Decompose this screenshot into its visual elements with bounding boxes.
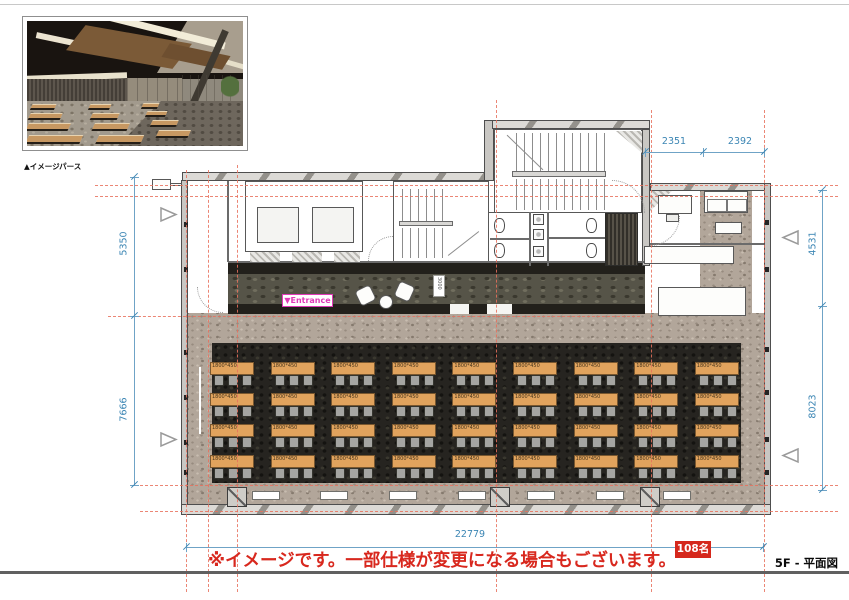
desk: 1800*450 bbox=[452, 393, 496, 406]
chair bbox=[470, 375, 480, 386]
chair bbox=[545, 375, 555, 386]
desk: 1800*450 bbox=[574, 424, 618, 437]
desk-size-label: 1800*450 bbox=[636, 363, 661, 369]
chair bbox=[699, 406, 709, 417]
chair bbox=[638, 437, 648, 448]
chair bbox=[335, 406, 345, 417]
dim-top-1: 2351 bbox=[649, 136, 699, 147]
desk-size-label: 1800*450 bbox=[212, 363, 237, 369]
wall-marker bbox=[765, 220, 769, 225]
section-marker-icon bbox=[781, 229, 800, 246]
desk: 1800*450 bbox=[695, 393, 739, 406]
dim-right-2: 8023 bbox=[808, 387, 819, 427]
desk: 1800*450 bbox=[513, 424, 557, 437]
floor-plan-sheet: ▲イメージパース bbox=[0, 0, 849, 600]
section-marker-icon bbox=[159, 431, 178, 448]
chair bbox=[484, 468, 494, 479]
window-bench bbox=[527, 491, 555, 500]
window-bench bbox=[389, 491, 417, 500]
chair bbox=[424, 406, 434, 417]
desk: 1800*450 bbox=[634, 362, 678, 375]
section-marker-icon bbox=[159, 206, 178, 223]
disclaimer-text: ※イメージです。一部仕様が変更になる場合もございます。 bbox=[208, 547, 678, 572]
window-bench bbox=[320, 491, 348, 500]
lounge-dimension-tag: 3000 bbox=[433, 275, 445, 297]
desk: 1800*450 bbox=[331, 362, 375, 375]
chair bbox=[652, 468, 662, 479]
desk-size-label: 1800*450 bbox=[515, 456, 540, 462]
chair bbox=[396, 437, 406, 448]
door-arc bbox=[368, 236, 393, 261]
chair bbox=[727, 437, 737, 448]
chair bbox=[303, 406, 313, 417]
desk-size-label: 1800*450 bbox=[333, 425, 358, 431]
chair bbox=[242, 375, 252, 386]
desk: 1800*450 bbox=[634, 455, 678, 468]
desk-size-label: 1800*450 bbox=[697, 456, 722, 462]
chair bbox=[638, 375, 648, 386]
chair bbox=[517, 468, 527, 479]
desk: 1800*450 bbox=[331, 424, 375, 437]
chair bbox=[727, 468, 737, 479]
desk: 1800*450 bbox=[574, 362, 618, 375]
chair bbox=[606, 437, 616, 448]
chair bbox=[410, 375, 420, 386]
chair bbox=[289, 437, 299, 448]
door-arc bbox=[197, 287, 223, 313]
chair bbox=[289, 468, 299, 479]
counter bbox=[644, 246, 734, 264]
chair bbox=[470, 437, 480, 448]
chair bbox=[424, 437, 434, 448]
grid-line bbox=[764, 110, 765, 592]
chair bbox=[456, 437, 466, 448]
desk: 1800*450 bbox=[634, 393, 678, 406]
desk: 1800*450 bbox=[513, 455, 557, 468]
chair bbox=[363, 437, 373, 448]
window-bench bbox=[252, 491, 280, 500]
equipment-unit bbox=[312, 207, 354, 243]
chair bbox=[303, 375, 313, 386]
chair bbox=[275, 375, 285, 386]
chair bbox=[410, 437, 420, 448]
door-arc bbox=[650, 216, 680, 246]
desk-size-label: 1800*450 bbox=[394, 394, 419, 400]
chair bbox=[289, 406, 299, 417]
chair bbox=[424, 375, 434, 386]
chair bbox=[242, 406, 252, 417]
desk-size-label: 1800*450 bbox=[636, 394, 661, 400]
desk: 1800*450 bbox=[452, 455, 496, 468]
chair bbox=[396, 468, 406, 479]
wall-marker bbox=[765, 347, 769, 352]
chair bbox=[470, 468, 480, 479]
chair bbox=[303, 468, 313, 479]
chair bbox=[424, 468, 434, 479]
chair bbox=[531, 375, 541, 386]
desk: 1800*450 bbox=[574, 393, 618, 406]
perspective-image bbox=[22, 16, 248, 151]
sofa bbox=[704, 191, 748, 213]
chair bbox=[666, 468, 676, 479]
bottom-window-wall bbox=[181, 504, 771, 515]
desk: 1800*450 bbox=[452, 362, 496, 375]
toilet-icon bbox=[586, 243, 597, 258]
top-border-line bbox=[0, 4, 849, 5]
chair bbox=[545, 406, 555, 417]
chair bbox=[727, 375, 737, 386]
entrance-label: ▼Entrance bbox=[282, 294, 333, 307]
desk: 1800*450 bbox=[392, 362, 436, 375]
chair bbox=[606, 468, 616, 479]
chair bbox=[666, 406, 676, 417]
chair bbox=[592, 437, 602, 448]
grid-line bbox=[140, 485, 838, 486]
chair bbox=[652, 406, 662, 417]
chair bbox=[727, 406, 737, 417]
top-wall-left bbox=[182, 172, 485, 181]
chair bbox=[410, 468, 420, 479]
window-bench bbox=[458, 491, 486, 500]
coffee-table bbox=[715, 222, 742, 234]
desk-size-label: 1800*450 bbox=[576, 456, 601, 462]
desk: 1800*450 bbox=[392, 393, 436, 406]
equipment-unit bbox=[257, 207, 299, 243]
corridor-wall bbox=[228, 261, 645, 263]
grid-line bbox=[95, 196, 838, 197]
chair bbox=[638, 406, 648, 417]
desk-size-label: 1800*450 bbox=[273, 363, 298, 369]
chair bbox=[578, 406, 588, 417]
desk: 1800*450 bbox=[695, 424, 739, 437]
desk-size-label: 1800*450 bbox=[394, 456, 419, 462]
chair bbox=[484, 375, 494, 386]
desk: 1800*450 bbox=[271, 455, 315, 468]
chair bbox=[349, 468, 359, 479]
chair bbox=[578, 468, 588, 479]
chair bbox=[545, 437, 555, 448]
wall-marker bbox=[765, 390, 769, 395]
toilet-icon bbox=[586, 218, 597, 233]
sink-icon bbox=[533, 214, 544, 225]
desk-size-label: 1800*450 bbox=[515, 363, 540, 369]
desk-size-label: 1800*450 bbox=[273, 425, 298, 431]
desk-size-label: 1800*450 bbox=[454, 363, 479, 369]
wall-marker bbox=[765, 470, 769, 475]
chair bbox=[289, 375, 299, 386]
chair bbox=[699, 437, 709, 448]
round-table bbox=[379, 295, 393, 309]
chair bbox=[349, 375, 359, 386]
sink-icon bbox=[533, 229, 544, 240]
chair bbox=[484, 437, 494, 448]
chair bbox=[410, 406, 420, 417]
grid-line bbox=[208, 170, 209, 592]
chair bbox=[699, 375, 709, 386]
wall-marker bbox=[765, 437, 769, 442]
stair-left-wall bbox=[484, 120, 494, 181]
dim-bottom: 22779 bbox=[440, 529, 500, 540]
grid-line bbox=[108, 316, 640, 317]
chair bbox=[713, 437, 723, 448]
threshold bbox=[450, 304, 469, 314]
inner-wall bbox=[227, 181, 229, 262]
desk: 1800*450 bbox=[695, 455, 739, 468]
chair bbox=[214, 468, 224, 479]
chair bbox=[470, 406, 480, 417]
desk-size-label: 1800*450 bbox=[636, 425, 661, 431]
chair bbox=[484, 406, 494, 417]
chair bbox=[214, 406, 224, 417]
desk: 1800*450 bbox=[392, 455, 436, 468]
desk: 1800*450 bbox=[271, 424, 315, 437]
chair bbox=[363, 468, 373, 479]
wall-segment bbox=[292, 252, 322, 262]
dim-top-2: 2392 bbox=[715, 136, 765, 147]
chair bbox=[242, 468, 252, 479]
chair bbox=[592, 375, 602, 386]
chair bbox=[517, 406, 527, 417]
desk-size-label: 1800*450 bbox=[273, 456, 298, 462]
grid-line bbox=[140, 511, 838, 512]
perspective-caption: ▲イメージパース bbox=[24, 161, 81, 172]
chair bbox=[349, 406, 359, 417]
desk-size-label: 1800*450 bbox=[697, 425, 722, 431]
desk-right-room bbox=[658, 195, 692, 214]
chair bbox=[666, 437, 676, 448]
chair bbox=[531, 437, 541, 448]
chair bbox=[335, 375, 345, 386]
chair bbox=[349, 437, 359, 448]
chair bbox=[396, 406, 406, 417]
chair bbox=[531, 468, 541, 479]
desk-size-label: 1800*450 bbox=[454, 425, 479, 431]
chair bbox=[713, 375, 723, 386]
column bbox=[490, 487, 510, 507]
stair-top-wall bbox=[492, 120, 650, 129]
desk: 1800*450 bbox=[271, 393, 315, 406]
desk: 1800*450 bbox=[271, 362, 315, 375]
desk: 1800*450 bbox=[452, 424, 496, 437]
desk-size-label: 1800*450 bbox=[576, 394, 601, 400]
grid-line bbox=[651, 110, 652, 592]
section-marker-icon bbox=[781, 447, 800, 464]
desk-size-label: 1800*450 bbox=[333, 394, 358, 400]
dim-left-1: 5350 bbox=[119, 224, 130, 264]
chair bbox=[275, 468, 285, 479]
window-bench bbox=[596, 491, 624, 500]
chair bbox=[713, 406, 723, 417]
desk-size-label: 1800*450 bbox=[515, 425, 540, 431]
grid-line bbox=[496, 100, 497, 592]
chair bbox=[303, 437, 313, 448]
chair bbox=[335, 468, 345, 479]
desk: 1800*450 bbox=[210, 455, 254, 468]
chair bbox=[713, 468, 723, 479]
desk-size-label: 1800*450 bbox=[273, 394, 298, 400]
elevator-shaft bbox=[605, 213, 638, 266]
chair bbox=[606, 375, 616, 386]
desk-size-label: 1800*450 bbox=[212, 456, 237, 462]
desk-size-label: 1800*450 bbox=[212, 394, 237, 400]
perspective-render bbox=[27, 21, 243, 146]
column bbox=[640, 487, 660, 507]
chair bbox=[652, 437, 662, 448]
floor-marking bbox=[199, 367, 201, 434]
chair bbox=[214, 437, 224, 448]
grid-line bbox=[186, 170, 187, 592]
desk-size-label: 1800*450 bbox=[454, 394, 479, 400]
chair bbox=[531, 406, 541, 417]
desk-size-label: 1800*450 bbox=[333, 456, 358, 462]
desk-size-label: 1800*450 bbox=[394, 363, 419, 369]
dim-left-2: 7666 bbox=[119, 390, 130, 430]
wall-segment bbox=[334, 252, 360, 262]
desk: 1800*450 bbox=[210, 362, 254, 375]
chair bbox=[275, 406, 285, 417]
desk: 1800*450 bbox=[331, 393, 375, 406]
desk-size-label: 1800*450 bbox=[454, 456, 479, 462]
desk-size-label: 1800*450 bbox=[697, 394, 722, 400]
desk: 1800*450 bbox=[513, 393, 557, 406]
threshold bbox=[487, 304, 512, 314]
counter bbox=[658, 287, 746, 316]
chair bbox=[275, 437, 285, 448]
chair bbox=[545, 468, 555, 479]
desk-size-label: 1800*450 bbox=[697, 363, 722, 369]
chair bbox=[606, 406, 616, 417]
chair bbox=[363, 406, 373, 417]
chair bbox=[638, 468, 648, 479]
desk-size-label: 1800*450 bbox=[212, 425, 237, 431]
desk: 1800*450 bbox=[210, 424, 254, 437]
chair bbox=[456, 375, 466, 386]
chair bbox=[456, 406, 466, 417]
desk: 1800*450 bbox=[331, 455, 375, 468]
chair bbox=[242, 437, 252, 448]
chair bbox=[517, 437, 527, 448]
chair bbox=[214, 375, 224, 386]
grid-line bbox=[237, 165, 238, 592]
capacity-badge: 108名 bbox=[675, 541, 711, 558]
chair bbox=[335, 437, 345, 448]
chair bbox=[456, 468, 466, 479]
wall-marker bbox=[765, 267, 769, 272]
desk: 1800*450 bbox=[574, 455, 618, 468]
grid-line bbox=[95, 185, 838, 186]
desk: 1800*450 bbox=[392, 424, 436, 437]
desk-size-label: 1800*450 bbox=[636, 456, 661, 462]
sink-icon bbox=[533, 246, 544, 257]
corridor-band bbox=[228, 262, 645, 274]
desk: 1800*450 bbox=[513, 362, 557, 375]
chair bbox=[363, 375, 373, 386]
chair bbox=[699, 468, 709, 479]
desk-size-label: 1800*450 bbox=[576, 425, 601, 431]
chair bbox=[578, 375, 588, 386]
wall-segment bbox=[250, 252, 280, 262]
desk-size-label: 1800*450 bbox=[394, 425, 419, 431]
desk-size-label: 1800*450 bbox=[333, 363, 358, 369]
window-bench bbox=[663, 491, 691, 500]
desk: 1800*450 bbox=[210, 393, 254, 406]
desk-size-label: 1800*450 bbox=[515, 394, 540, 400]
desk: 1800*450 bbox=[695, 362, 739, 375]
dim-right-1: 4531 bbox=[808, 224, 819, 264]
desk-size-label: 1800*450 bbox=[576, 363, 601, 369]
chair bbox=[592, 468, 602, 479]
sheet-title: 5F - 平面図 bbox=[760, 555, 838, 571]
chair bbox=[396, 375, 406, 386]
chair bbox=[592, 406, 602, 417]
chair bbox=[578, 437, 588, 448]
chair bbox=[666, 375, 676, 386]
chair bbox=[517, 375, 527, 386]
desk: 1800*450 bbox=[634, 424, 678, 437]
chair bbox=[652, 375, 662, 386]
